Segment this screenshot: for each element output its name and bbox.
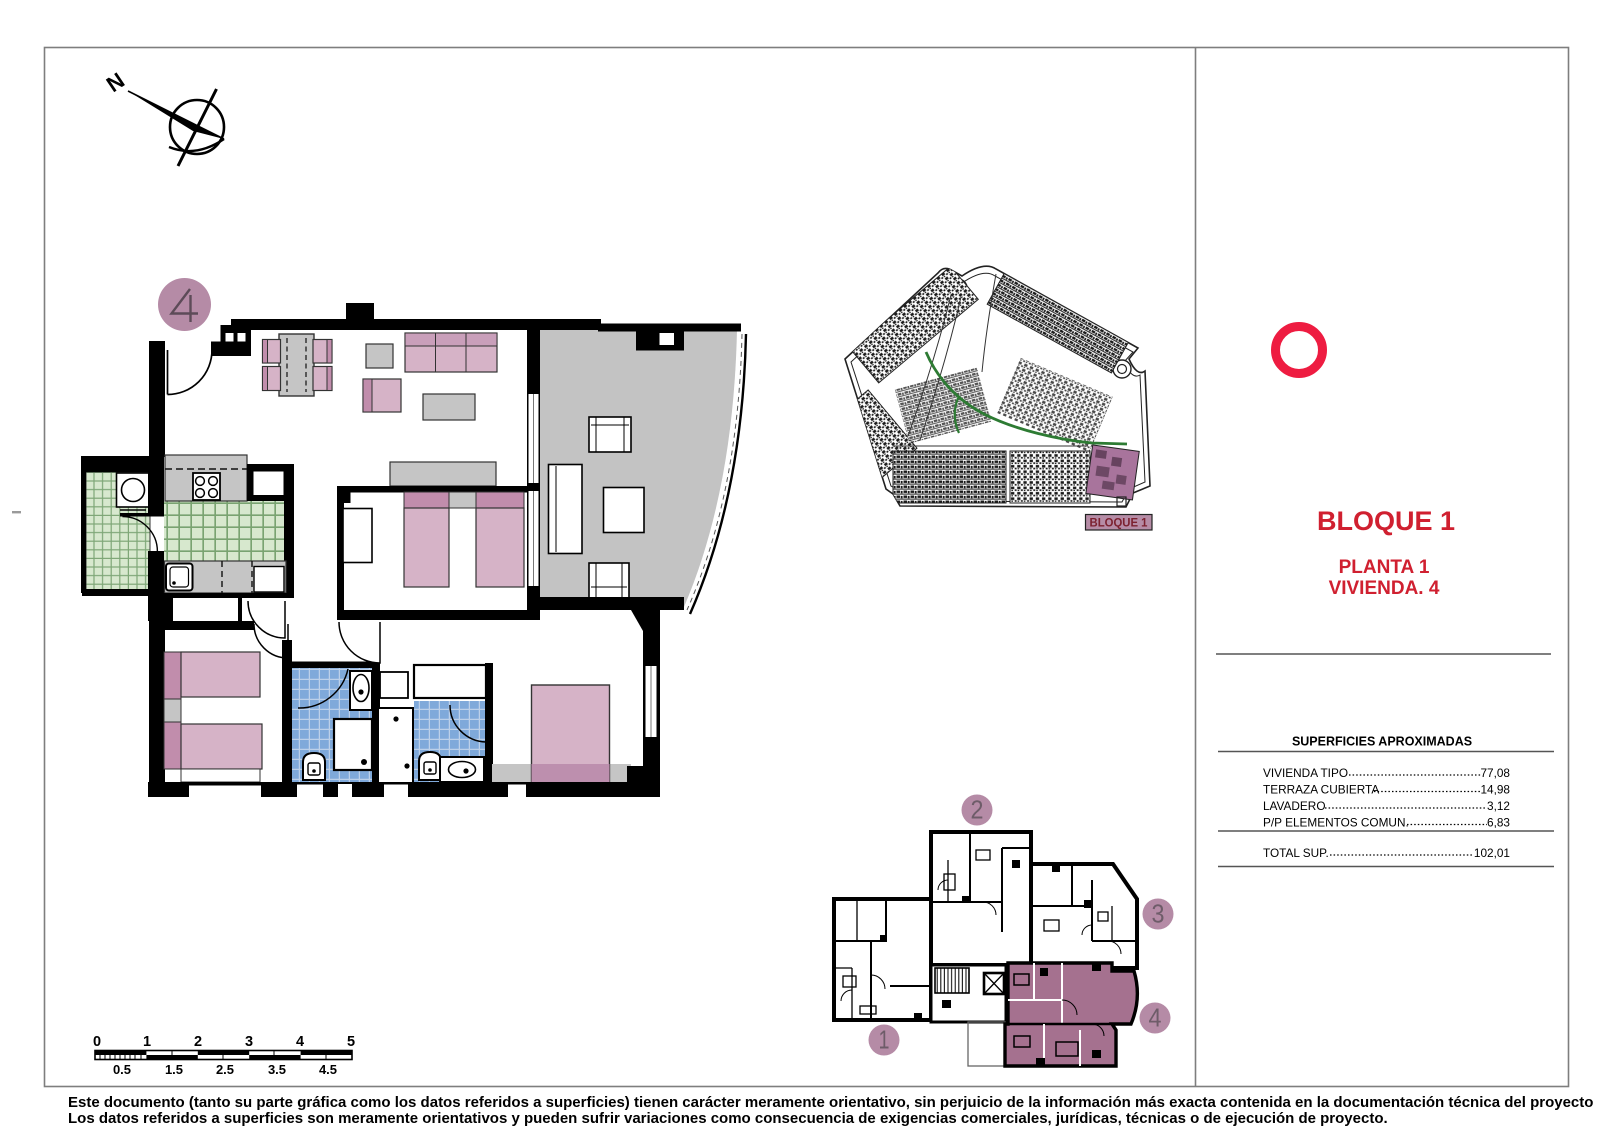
svg-text:102,01: 102,01 (1474, 846, 1510, 860)
svg-text:2: 2 (194, 1034, 202, 1050)
svg-text:Este documento (tanto su parte: Este documento (tanto su parte gráfica c… (68, 1094, 1593, 1111)
svg-text:VIVIENDA. 4: VIVIENDA. 4 (1329, 578, 1440, 599)
svg-text:TERRAZA CUBIERTA: TERRAZA CUBIERTA (1263, 783, 1379, 797)
svg-text:TOTAL SUP.: TOTAL SUP. (1263, 846, 1329, 860)
svg-text:14,98: 14,98 (1480, 783, 1510, 797)
svg-text:PLANTA 1: PLANTA 1 (1339, 557, 1430, 578)
svg-text:1.5: 1.5 (165, 1062, 183, 1077)
svg-text:3,12: 3,12 (1487, 799, 1510, 813)
svg-text:SUPERFICIES APROXIMADAS: SUPERFICIES APROXIMADAS (1292, 735, 1472, 749)
svg-text:3.5: 3.5 (268, 1062, 286, 1077)
svg-text:77,08: 77,08 (1480, 766, 1510, 780)
svg-text:VIVIENDA TIPO: VIVIENDA TIPO (1263, 766, 1348, 780)
svg-text:Los datos referidos a superfic: Los datos referidos a superficies son me… (68, 1110, 1388, 1127)
svg-text:5: 5 (347, 1034, 355, 1050)
svg-text:0.5: 0.5 (113, 1062, 131, 1077)
svg-text:3: 3 (245, 1034, 253, 1050)
svg-text:P/P ELEMENTOS COMUN.: P/P ELEMENTOS COMUN. (1263, 816, 1409, 830)
svg-text:2: 2 (971, 795, 984, 825)
svg-text:0: 0 (93, 1034, 101, 1050)
svg-text:BLOQUE 1: BLOQUE 1 (1090, 518, 1149, 530)
svg-text:4: 4 (1149, 1003, 1162, 1033)
svg-text:BLOQUE 1: BLOQUE 1 (1317, 506, 1455, 536)
svg-text:LAVADERO: LAVADERO (1263, 799, 1326, 813)
svg-text:6,83: 6,83 (1487, 816, 1510, 830)
svg-text:3: 3 (1152, 899, 1165, 929)
svg-text:4: 4 (296, 1034, 304, 1050)
svg-text:1: 1 (143, 1034, 151, 1050)
svg-text:1: 1 (879, 1025, 890, 1055)
svg-text:4.5: 4.5 (319, 1062, 337, 1077)
svg-text:2.5: 2.5 (216, 1062, 234, 1077)
